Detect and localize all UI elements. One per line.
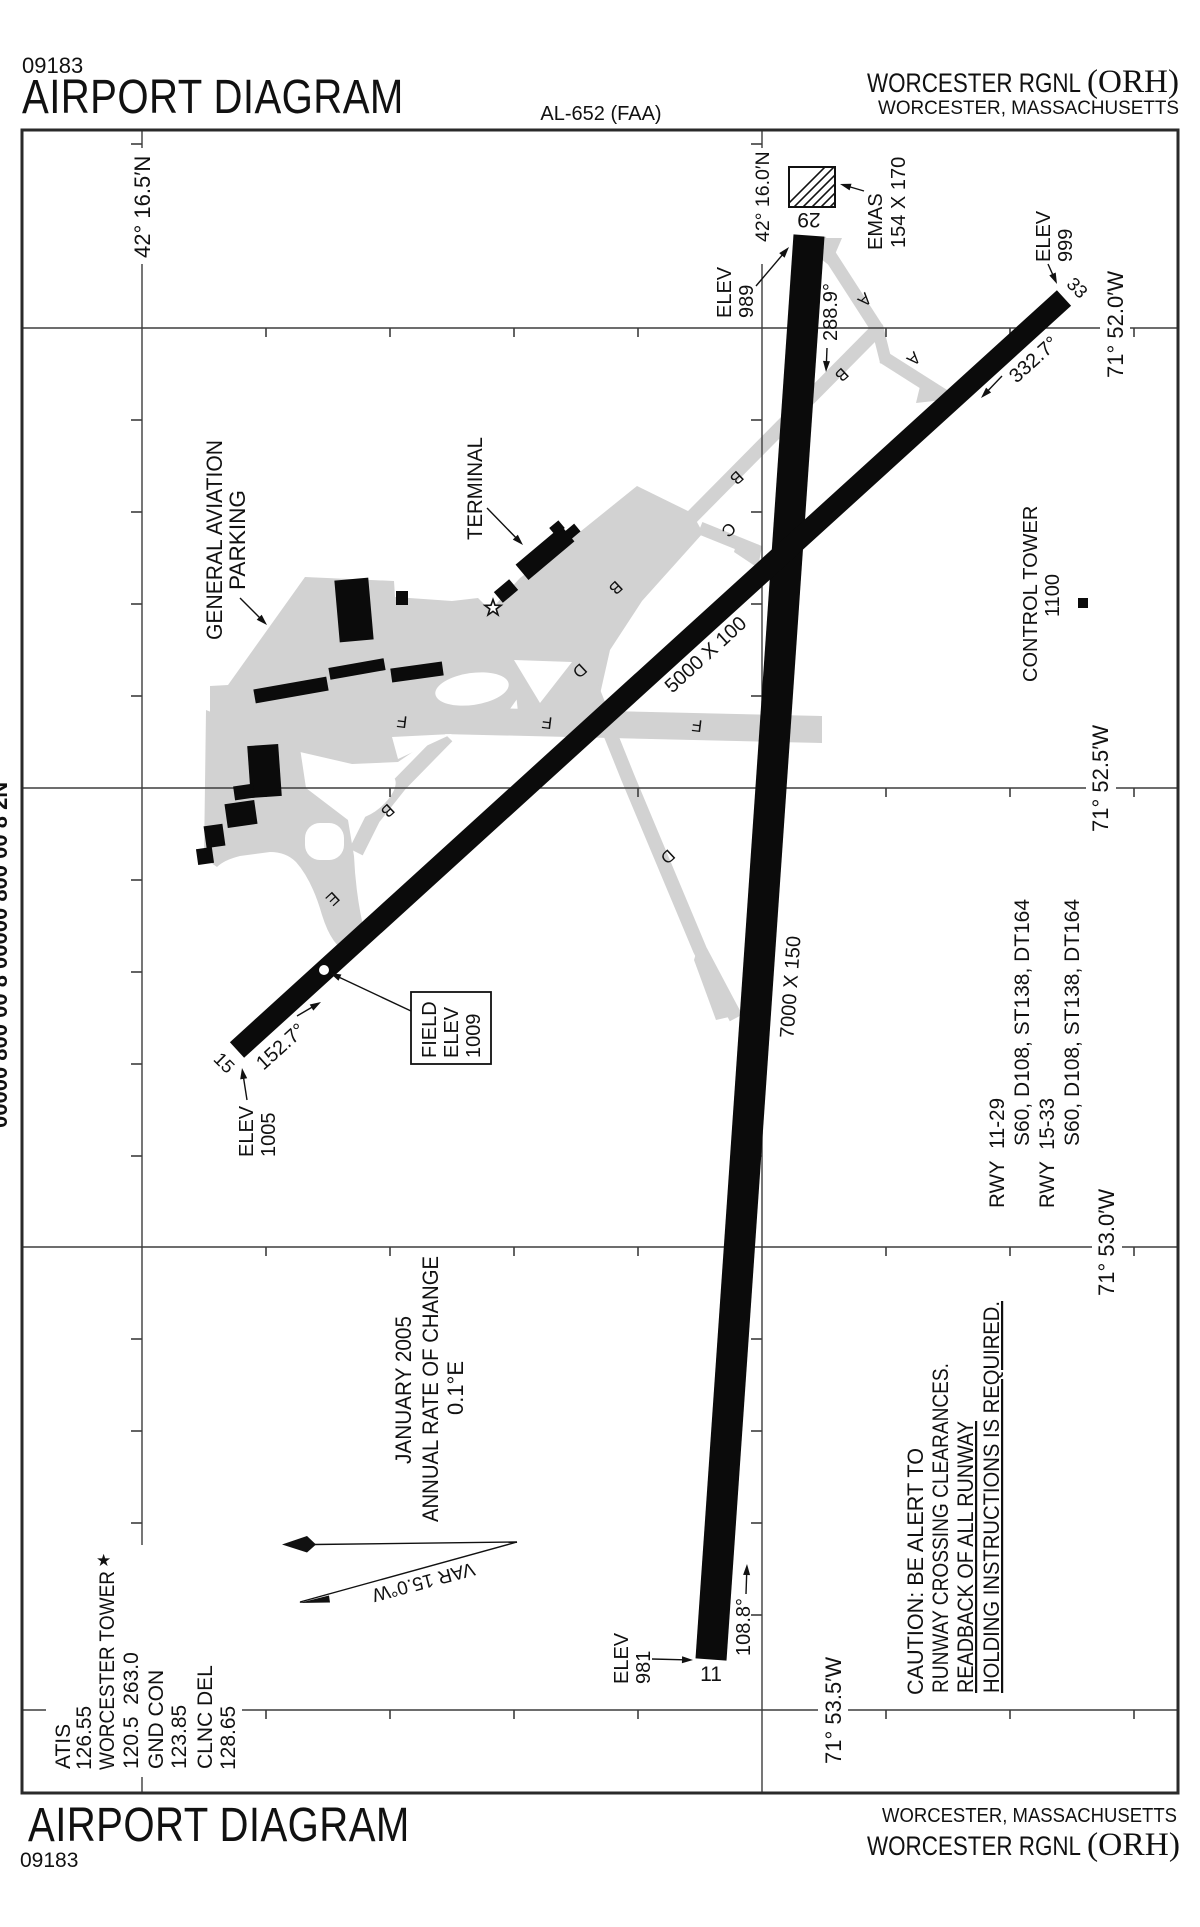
svg-text:126.55: 126.55 bbox=[73, 1706, 96, 1770]
svg-text:ELEV: ELEV bbox=[441, 1006, 463, 1058]
svg-text:09183: 09183 bbox=[20, 1849, 78, 1872]
svg-text:71° 52.5′W: 71° 52.5′W bbox=[1088, 725, 1113, 832]
svg-text:WORCESTER TOWER: WORCESTER TOWER bbox=[96, 1571, 119, 1770]
svg-text:00000 800 00 8 00000 800 00 8: 00000 800 00 8 00000 800 00 8 2N bbox=[0, 782, 12, 1128]
svg-text:288.9°: 288.9° bbox=[820, 283, 842, 341]
svg-text:0.1°E: 0.1°E bbox=[443, 1361, 468, 1415]
svg-text:WORCESTER RGNL: WORCESTER RGNL bbox=[867, 1831, 1081, 1861]
svg-text:RUNWAY CROSSING CLEARANCES.: RUNWAY CROSSING CLEARANCES. bbox=[928, 1363, 953, 1693]
svg-text:WORCESTER RGNL: WORCESTER RGNL bbox=[867, 68, 1081, 98]
svg-text:ELEV: ELEV bbox=[1033, 210, 1055, 262]
svg-text:RWY 15-33: RWY 15-33 bbox=[1036, 1098, 1059, 1208]
svg-text:42° 16.5′N: 42° 16.5′N bbox=[130, 156, 155, 258]
svg-text:981: 981 bbox=[633, 1651, 655, 1684]
svg-text:AIRPORT DIAGRAM: AIRPORT DIAGRAM bbox=[28, 1799, 410, 1852]
svg-text:999: 999 bbox=[1055, 229, 1077, 262]
svg-text:WORCESTER, MASSACHUSETTS: WORCESTER, MASSACHUSETTS bbox=[882, 1805, 1177, 1827]
svg-text:ELEV: ELEV bbox=[714, 266, 736, 318]
svg-text:GENERAL AVIATION: GENERAL AVIATION bbox=[202, 440, 227, 640]
svg-text:WORCESTER, MASSACHUSETTS: WORCESTER, MASSACHUSETTS bbox=[878, 97, 1179, 119]
svg-text:PARKING: PARKING bbox=[225, 490, 250, 590]
svg-text:CAUTION: BE ALERT TO: CAUTION: BE ALERT TO bbox=[903, 1448, 928, 1695]
svg-text:128.65: 128.65 bbox=[217, 1706, 240, 1770]
svg-text:108.8°: 108.8° bbox=[733, 1598, 755, 1656]
svg-text:JANUARY 2005: JANUARY 2005 bbox=[391, 1316, 416, 1464]
svg-text:FIELD: FIELD bbox=[419, 1001, 441, 1058]
svg-text:EMAS: EMAS bbox=[865, 193, 887, 250]
svg-text:154 X 170: 154 X 170 bbox=[888, 157, 910, 248]
svg-text:42° 16.0′N: 42° 16.0′N bbox=[752, 151, 774, 242]
svg-text:ANNUAL RATE OF CHANGE: ANNUAL RATE OF CHANGE bbox=[418, 1256, 443, 1522]
svg-text:CONTROL TOWER: CONTROL TOWER bbox=[1020, 506, 1042, 682]
svg-text:71° 53.5′W: 71° 53.5′W bbox=[821, 1657, 846, 1764]
svg-text:1100: 1100 bbox=[1042, 574, 1064, 617]
svg-text:ATIS: ATIS bbox=[52, 1724, 75, 1769]
svg-text:GND CON: GND CON bbox=[145, 1670, 168, 1769]
svg-text:1009: 1009 bbox=[463, 1014, 485, 1059]
svg-text:71° 53.0′W: 71° 53.0′W bbox=[1094, 1189, 1119, 1296]
svg-text:RWY 11-29: RWY 11-29 bbox=[986, 1098, 1009, 1208]
svg-text:AIRPORT DIAGRAM: AIRPORT DIAGRAM bbox=[22, 71, 404, 124]
svg-text:(ORH): (ORH) bbox=[1087, 1827, 1180, 1863]
svg-text:S60, D108, ST138, DT164: S60, D108, ST138, DT164 bbox=[1011, 899, 1034, 1146]
svg-text:READBACK OF ALL RUNWAY: READBACK OF ALL RUNWAY bbox=[953, 1421, 978, 1693]
svg-text:71° 52.0′W: 71° 52.0′W bbox=[1103, 271, 1128, 378]
svg-text:HOLDING INSTRUCTIONS IS REQUIR: HOLDING INSTRUCTIONS IS REQUIRED. bbox=[979, 1301, 1004, 1693]
svg-text:TERMINAL: TERMINAL bbox=[463, 437, 487, 540]
svg-text:CLNC DEL: CLNC DEL bbox=[194, 1665, 217, 1769]
svg-text:AL-652 (FAA): AL-652 (FAA) bbox=[540, 103, 661, 125]
svg-text:989: 989 bbox=[736, 285, 758, 318]
svg-text:123.85: 123.85 bbox=[168, 1705, 191, 1769]
svg-text:ELEV: ELEV bbox=[236, 1105, 258, 1157]
svg-text:120.5 263.0: 120.5 263.0 bbox=[120, 1652, 143, 1769]
svg-text:★: ★ bbox=[96, 1551, 111, 1570]
svg-text:ELEV: ELEV bbox=[611, 1632, 633, 1684]
svg-text:11: 11 bbox=[700, 1663, 722, 1686]
svg-text:1005: 1005 bbox=[258, 1113, 280, 1158]
svg-text:(ORH): (ORH) bbox=[1087, 64, 1179, 100]
svg-text:S60, D108, ST138, DT164: S60, D108, ST138, DT164 bbox=[1061, 899, 1084, 1146]
svg-text:29: 29 bbox=[797, 208, 820, 231]
